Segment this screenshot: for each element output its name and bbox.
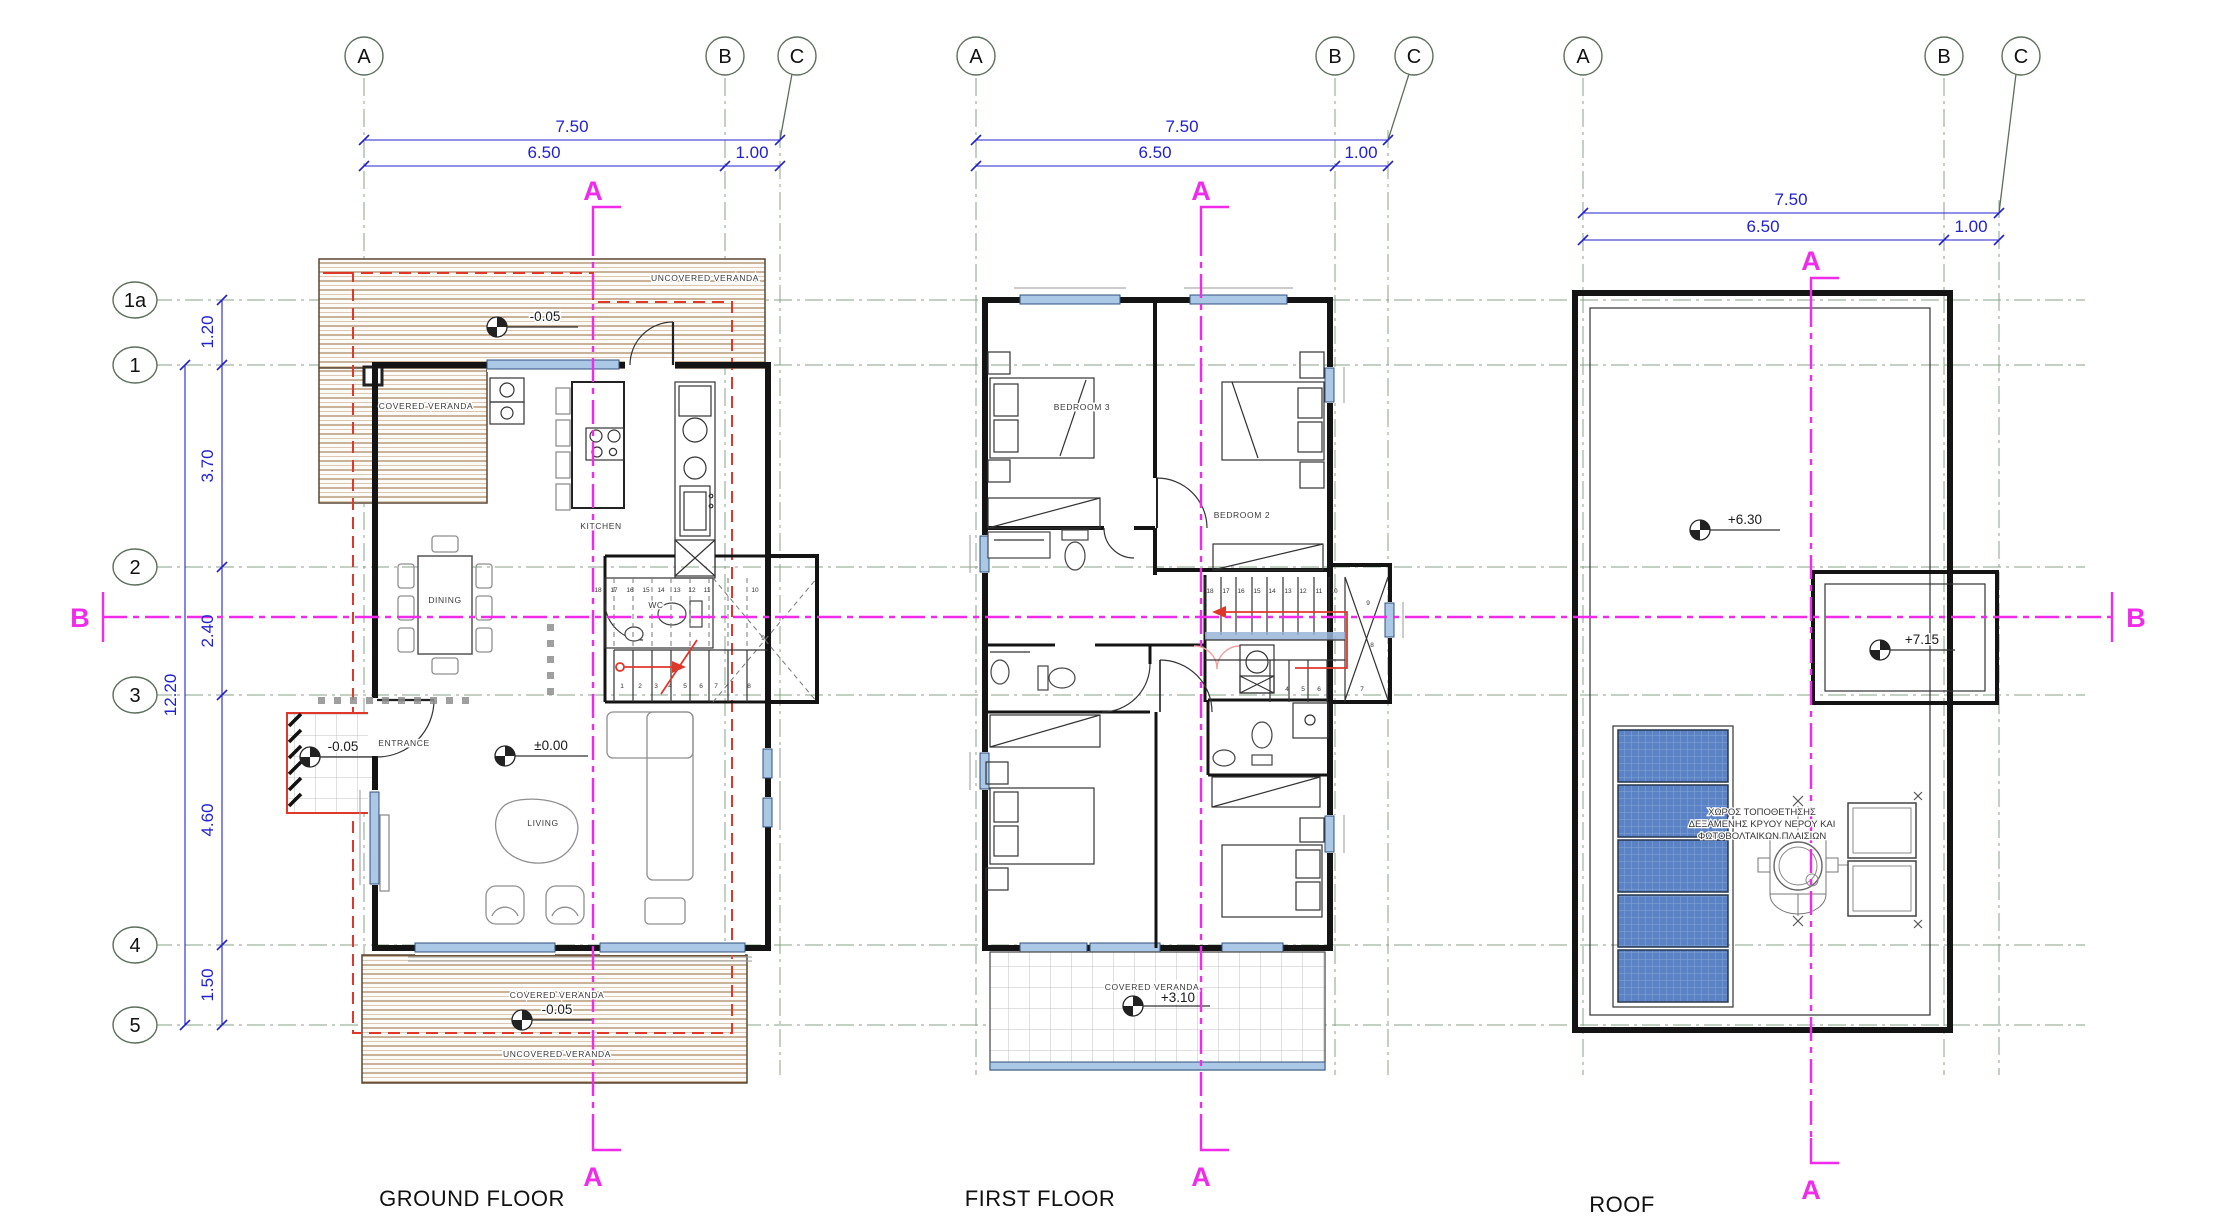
first-partitions xyxy=(985,300,1330,948)
dim-ground-main: 6.50 xyxy=(527,143,560,162)
stair-num: 18 xyxy=(594,587,602,594)
section-b-right: B xyxy=(2126,603,2146,633)
section-a-top-ground: A xyxy=(583,176,603,206)
col-bubble-c1: C xyxy=(790,46,804,68)
first-shaft xyxy=(1240,645,1274,693)
dim-roof-total: 7.50 xyxy=(1774,190,1807,209)
dim-left-total: 12.20 xyxy=(161,674,180,717)
row-bubble-4: 4 xyxy=(129,935,140,957)
roof-collectors xyxy=(1848,792,1922,928)
stair-num: 15 xyxy=(642,587,650,594)
col-bubble-a2: A xyxy=(969,46,983,68)
stair-num: 18 xyxy=(1206,588,1214,595)
row-bubble-3: 3 xyxy=(129,685,140,707)
architectural-drawing-sheet: A B C A B C A B C 1a 1 2 3 4 5 7.50 6.50… xyxy=(0,0,2228,1216)
row-bubble-2: 2 xyxy=(129,557,140,579)
stair-num: 17 xyxy=(610,587,618,594)
roof-note-line2: ΔΕΞΑΜΕΝΗΣ ΚΡΥΟΥ ΝΕΡΟΥ ΚΑΙ xyxy=(1689,819,1836,830)
section-a-top-roof: A xyxy=(1801,246,1821,276)
section-a-bottom-ground: A xyxy=(583,1162,603,1192)
stair-num: 11 xyxy=(1316,588,1323,595)
label-bedroom3: BEDROOM 3 xyxy=(1054,402,1110,412)
dim-left-4: 4.60 xyxy=(198,803,217,836)
stair-num: 5 xyxy=(683,683,687,690)
stair-num: 4 xyxy=(668,683,672,690)
solar-panels xyxy=(1613,726,1733,1007)
stair-num: 17 xyxy=(1222,588,1230,595)
ground-veranda-bottom xyxy=(362,955,747,1083)
stair-num: 9 xyxy=(761,635,765,642)
label-wc: WC xyxy=(648,600,663,610)
entrance-porch xyxy=(287,713,375,813)
stair-num: 15 xyxy=(1253,588,1261,595)
col-bubble-b3: B xyxy=(1937,46,1950,68)
dim-ground-side: 1.00 xyxy=(735,143,768,162)
level-first-veranda: +3.10 xyxy=(1161,990,1195,1005)
label-covered-veranda-top: COVERED VERANDA xyxy=(379,401,474,411)
level-roof-main: +6.30 xyxy=(1728,512,1762,527)
level-veranda-top: -0.05 xyxy=(530,309,561,324)
first-stairs xyxy=(1205,577,1388,702)
label-living: LIVING xyxy=(527,818,558,828)
first-windows xyxy=(970,288,1403,952)
row-bubble-1a: 1a xyxy=(124,290,147,312)
roof-plan xyxy=(1575,293,1997,1030)
stair-num: 16 xyxy=(1237,588,1245,595)
level-floor: ±0.00 xyxy=(534,738,568,753)
stair-num: 8 xyxy=(1370,642,1374,649)
stair-num: 14 xyxy=(1268,588,1276,595)
stair-num: 10 xyxy=(751,587,759,594)
stair-num: 8 xyxy=(747,683,751,690)
dim-left-5: 1.50 xyxy=(198,968,217,1001)
label-entrance: ENTRANCE xyxy=(378,738,430,748)
label-uncovered-veranda-bottom: UNCOVERED VERANDA xyxy=(503,1049,611,1059)
label-bedroom2: BEDROOM 2 xyxy=(1214,510,1270,520)
dim-roof-main: 6.50 xyxy=(1746,217,1779,236)
ground-veranda-top xyxy=(319,259,765,503)
section-a-bottom-roof: A xyxy=(1801,1175,1821,1205)
section-a-bottom-first: A xyxy=(1191,1162,1211,1192)
col-bubble-b1: B xyxy=(718,46,731,68)
stair-num: 7 xyxy=(1360,686,1364,693)
dining-furniture xyxy=(398,536,492,674)
stair-num: 9 xyxy=(1366,600,1370,607)
stair-num: 3 xyxy=(654,683,658,690)
col-bubble-c2: C xyxy=(1407,46,1421,68)
level-veranda-bottom: -0.05 xyxy=(542,1002,573,1017)
level-roof-annex: +7.15 xyxy=(1905,632,1939,647)
stair-num: 5 xyxy=(1301,686,1305,693)
stair-num: 13 xyxy=(1284,588,1292,595)
kitchen-fixtures xyxy=(490,378,715,578)
dim-first-main: 6.50 xyxy=(1138,143,1171,162)
col-bubble-a3: A xyxy=(1576,46,1590,68)
label-covered-veranda-bottom: COVERED VERANDA xyxy=(510,990,605,1000)
dim-first-total: 7.50 xyxy=(1165,117,1198,136)
col-bubble-c3: C xyxy=(2014,46,2028,68)
dim-ground-total: 7.50 xyxy=(555,117,588,136)
stair-num: 16 xyxy=(626,587,634,594)
dim-left-3: 2.40 xyxy=(198,614,217,647)
row-bubble-1: 1 xyxy=(129,355,140,377)
stair-num: 6 xyxy=(699,683,703,690)
row-bubble-5: 5 xyxy=(129,1015,140,1037)
stair-num: 1 xyxy=(620,683,624,690)
roof-note-line1: ΧΩΡΟΣ ΤΟΠΟΘΕΤΗΣΗΣ xyxy=(1708,807,1816,818)
entrance-door xyxy=(377,700,434,757)
col-bubble-b2: B xyxy=(1328,46,1341,68)
level-porch: -0.05 xyxy=(328,739,359,754)
col-bubble-a1: A xyxy=(357,46,371,68)
first-veranda xyxy=(990,952,1325,1070)
stair-num: 10 xyxy=(1330,588,1338,595)
label-dining: DINING xyxy=(428,595,461,605)
label-kitchen: KITCHEN xyxy=(580,521,622,531)
roof-note-line3: ΦΩΤΟΒΟΛΤΑΙΚΩΝ ΠΛΑΙΣΙΩΝ xyxy=(1698,831,1827,842)
first-floor-plan xyxy=(970,288,1403,1070)
ground-floor-title: GROUND FLOOR xyxy=(379,1186,565,1211)
label-uncovered-veranda-top: UNCOVERED VERANDA xyxy=(651,273,759,283)
section-b-left: B xyxy=(70,603,90,633)
roof-title: ROOF xyxy=(1589,1192,1655,1216)
stair-num: 11 xyxy=(704,587,711,594)
section-a-top-first: A xyxy=(1191,176,1211,206)
dim-left-2: 3.70 xyxy=(198,449,217,482)
dim-roof-side: 1.00 xyxy=(1954,217,1987,236)
floor-plans-canvas: A B C A B C A B C 1a 1 2 3 4 5 7.50 6.50… xyxy=(0,0,2228,1216)
stair-num: 12 xyxy=(1299,588,1307,595)
ground-floor-plan xyxy=(287,259,817,1083)
stair-num: 14 xyxy=(657,587,665,594)
stair-num: 12 xyxy=(688,587,696,594)
first-bathrooms xyxy=(988,530,1328,766)
stair-num: 7 xyxy=(714,683,718,690)
dim-first-side: 1.00 xyxy=(1344,143,1377,162)
first-floor-title: FIRST FLOOR xyxy=(965,1186,1116,1211)
stair-num: 4 xyxy=(1285,686,1289,693)
dim-left-1: 1.20 xyxy=(198,315,217,348)
stair-num: 6 xyxy=(1317,686,1321,693)
stair-num: 13 xyxy=(673,587,681,594)
stair-num: 2 xyxy=(638,683,642,690)
